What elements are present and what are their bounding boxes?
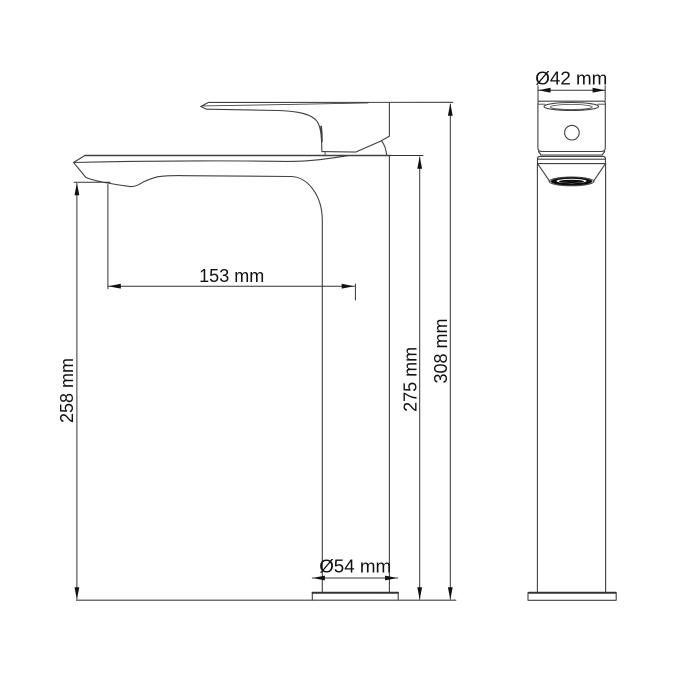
svg-text:275 mm: 275 mm (401, 347, 421, 412)
svg-text:Ø54 mm: Ø54 mm (319, 555, 391, 576)
svg-text:308 mm: 308 mm (431, 318, 451, 383)
svg-text:258 mm: 258 mm (57, 358, 77, 423)
svg-text:Ø42 mm: Ø42 mm (535, 67, 607, 88)
svg-text:153 mm: 153 mm (199, 266, 264, 286)
